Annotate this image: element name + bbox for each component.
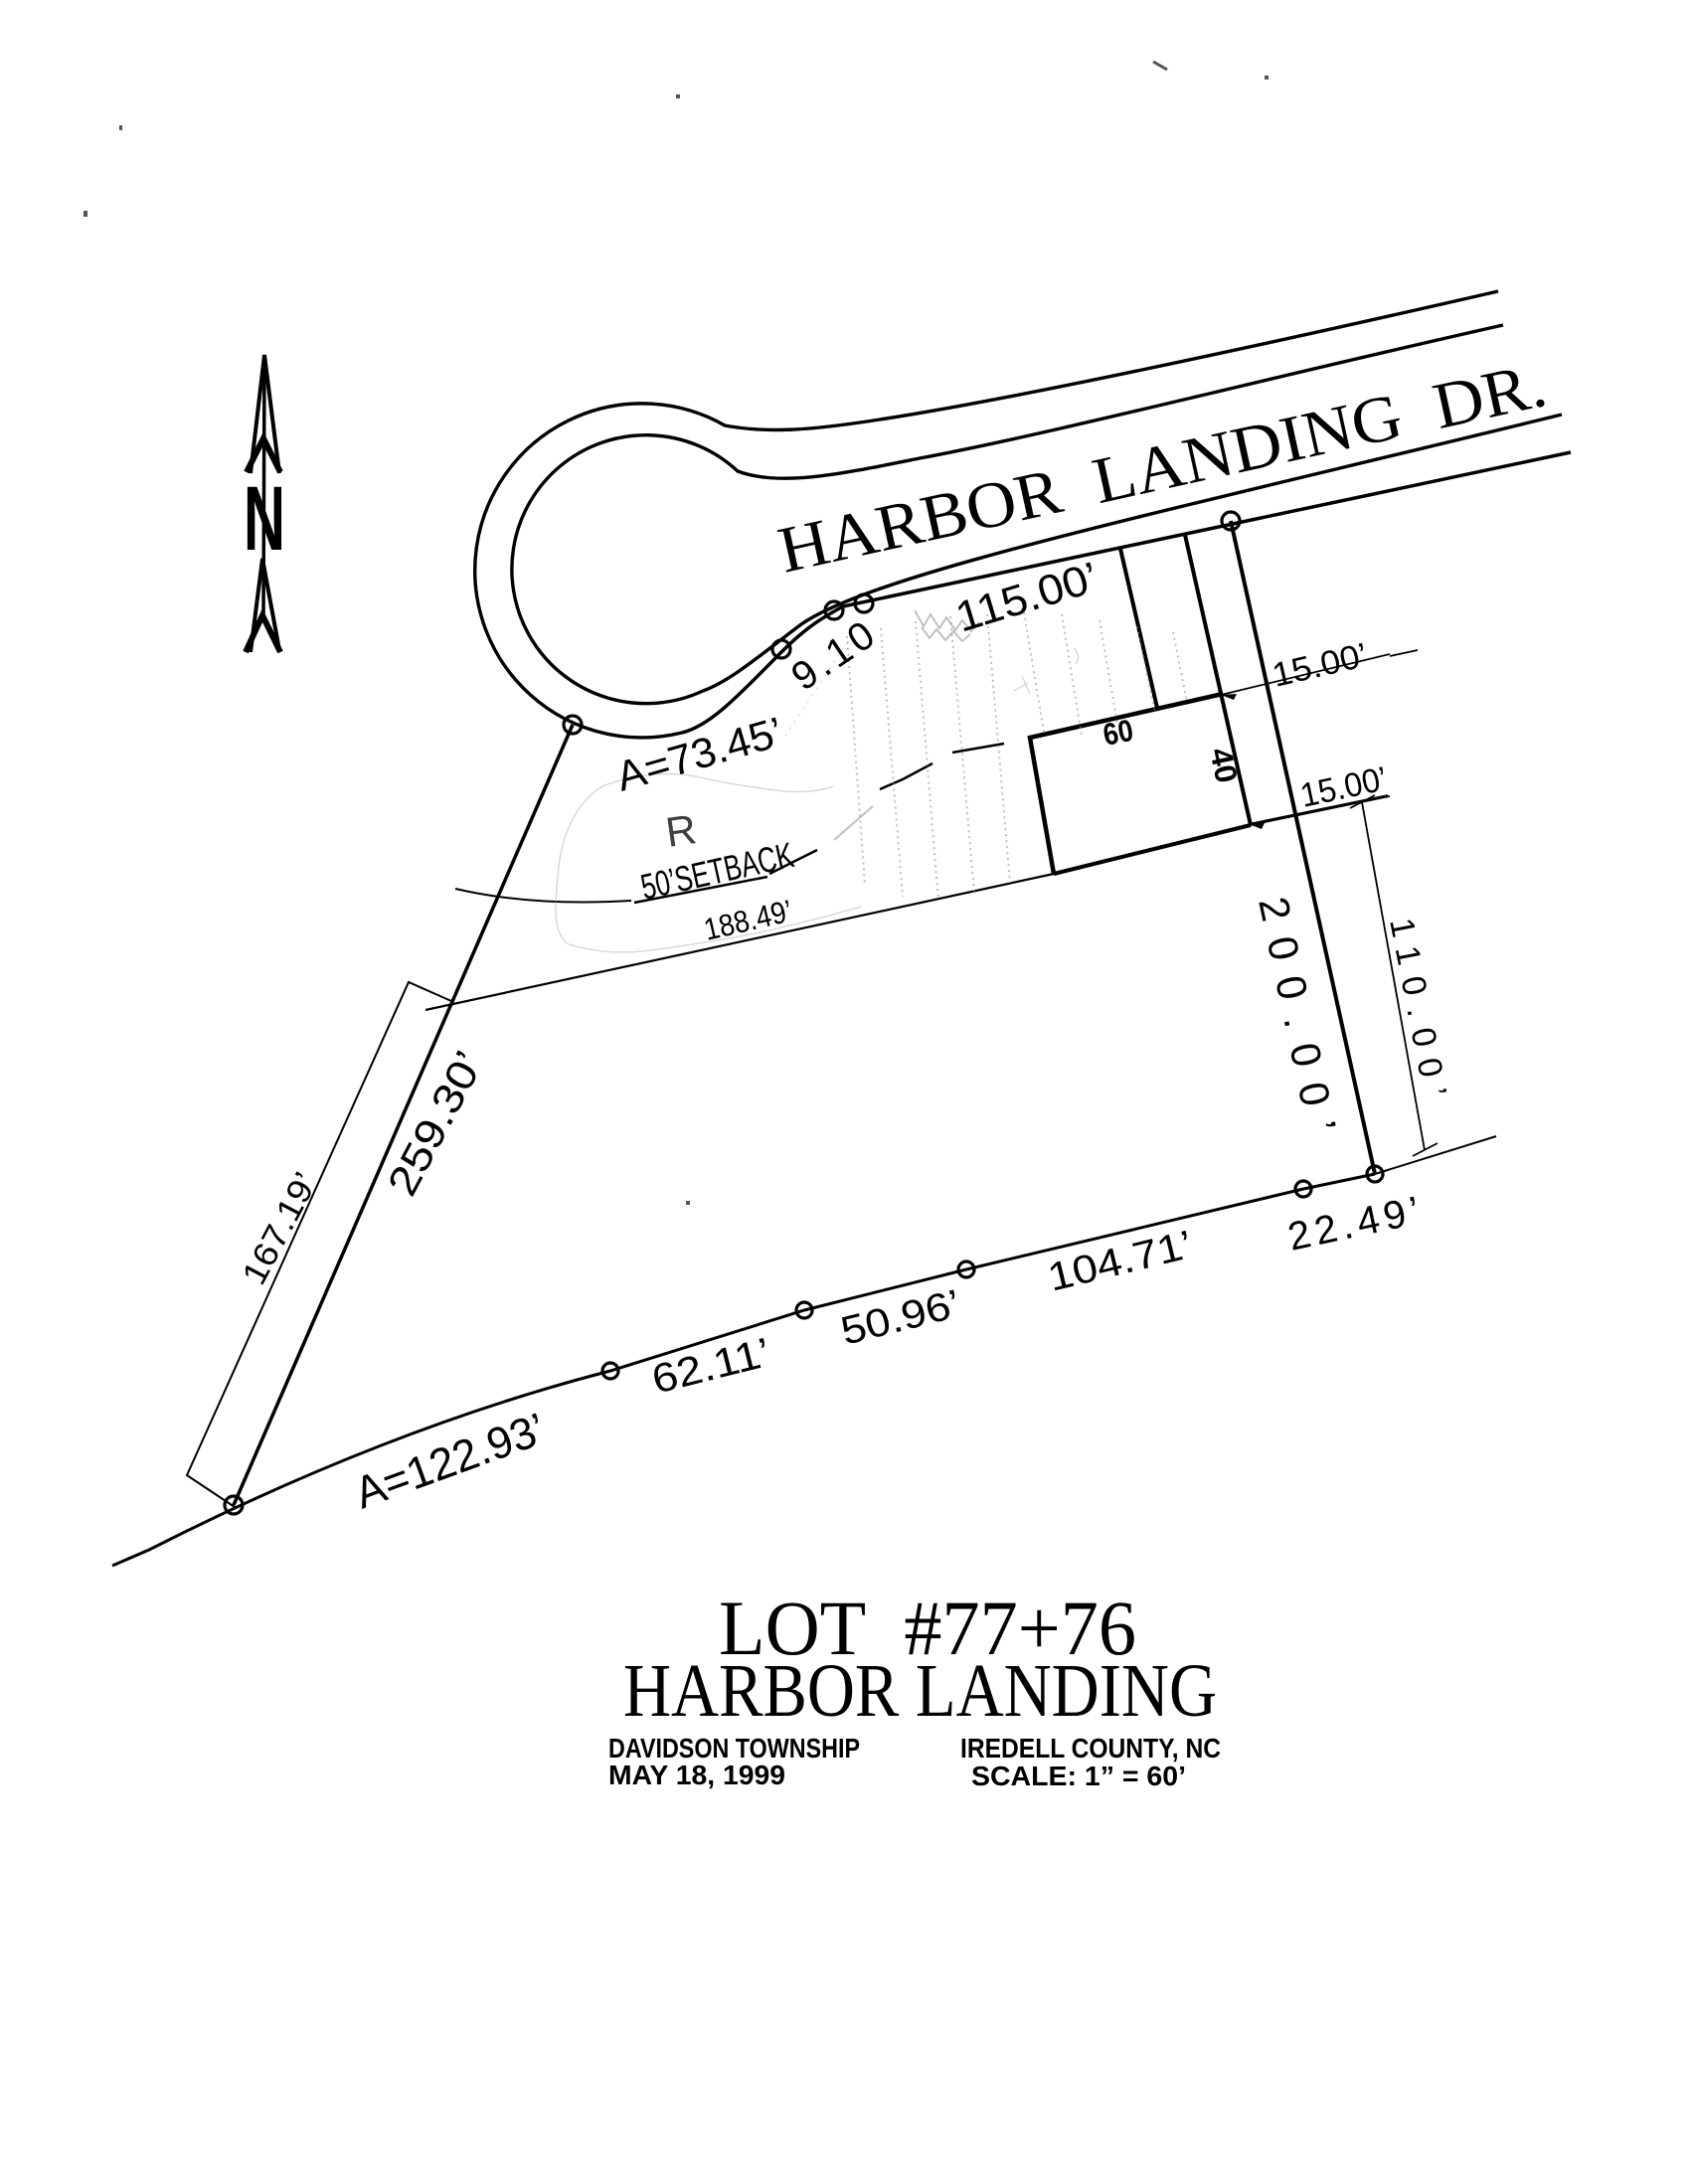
svg-text:N: N [244, 468, 285, 570]
svg-text:IREDELL COUNTY, NC: IREDELL COUNTY, NC [960, 1733, 1221, 1764]
svg-text:HARBOR LANDING: HARBOR LANDING [623, 1649, 1217, 1733]
svg-text:MAY 18, 1999: MAY 18, 1999 [608, 1760, 785, 1790]
svg-text:SCALE: 1” = 60’: SCALE: 1” = 60’ [971, 1761, 1186, 1791]
svg-text:R: R [663, 805, 700, 856]
svg-text:40: 40 [1203, 745, 1245, 786]
